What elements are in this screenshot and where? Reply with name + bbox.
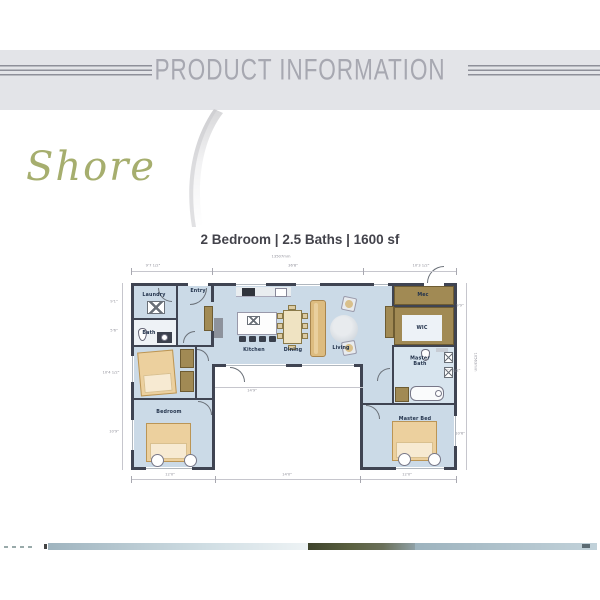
dim-label-overall-width: 13507mm [271,255,290,259]
master-pillow-right [428,453,441,466]
wall-masterbed-top [362,403,454,405]
window-bedroom-bottom [146,467,192,470]
photo-strip-sky-right [415,543,597,550]
wall-bath-bottom [133,345,214,347]
wall-rightwing-left [360,364,363,470]
dining-chair [277,333,283,339]
dim-label: 12'0" [402,473,412,477]
entry-closet [204,306,213,331]
page-curl-icon [176,109,226,229]
window-masterbed-bottom [396,467,444,470]
room-label-living: Living [332,345,349,351]
photo-strip-dash [20,546,24,548]
master-sink-1 [444,352,453,363]
dim-label: 14'9" [247,389,257,393]
dining-chair [277,313,283,319]
master-pillow-left [398,453,411,466]
armchair-top [341,296,358,313]
sliding-door-left [226,364,286,367]
dim-line-right [466,283,467,470]
dining-chair [288,305,296,310]
dining-chair [302,313,308,319]
fridge-icon [275,288,287,297]
window-kitchen [236,283,266,286]
photo-strip-sky-left [48,543,308,550]
room-label-bedroom: Bedroom [156,409,181,415]
dining-chair [302,323,308,329]
plan-summary: 2 Bedroom | 2.5 Baths | 1600 sf [120,232,480,247]
wall-mec-bottom [392,305,454,307]
dim-label: 14'0" [282,473,292,477]
bedroom-pillow-left [151,454,164,467]
photo-strip-speck [582,544,590,548]
stool-1 [239,336,246,342]
sliding-door-right [302,364,354,367]
hall-closet [385,306,394,338]
dim-label: 9'1" [110,300,117,304]
dim-tick [456,476,457,483]
washer-icon [147,301,165,314]
wall-top [131,283,457,286]
stove-icon [242,288,255,296]
window-dining [296,283,320,286]
brand-logo-shore: Shore [26,144,156,190]
office-bed-icon [137,350,177,397]
dim-tick [131,476,132,483]
dim-line-left [122,283,123,470]
island-sink-icon [247,316,260,325]
bedroom-pillow-right [184,454,197,467]
dining-chair [277,323,283,329]
masterbath-closet [395,387,409,402]
office-closet-upper [180,349,194,368]
door-opening-topright [424,283,444,286]
dim-tick [456,268,457,275]
photo-strip-trees [308,543,415,550]
dim-label: 10'4 1/2" [102,371,119,375]
wall-office-bedroom [133,398,214,400]
dim-label: 10'9" [109,430,119,434]
dim-label: 9'7 1/2" [146,264,161,268]
room-label-wic: WIC [416,325,427,331]
dim-label: 5'6" [110,329,117,333]
dim-label-overall-height: 10563mm [473,352,477,371]
window-hall [374,283,388,286]
dining-table-icon [283,310,302,344]
dim-label: 9'9" [456,304,463,308]
wall-masterbath-left [392,347,394,405]
photo-strip-dash [12,546,16,548]
photo-strip-dash [4,546,8,548]
bath-sink-icon [161,334,168,341]
page: PRODUCT INFORMATION Shore 2 Bedroom | 2.… [0,0,600,600]
room-label-mec: Mec [417,292,428,298]
dim-tick [215,476,216,483]
room-label-master-bath: Master Bath [408,355,432,367]
rug-icon [330,315,358,343]
dim-label: 10'3 1/2" [412,264,429,268]
sofa-icon [310,300,326,357]
room-label-laundry: Laundry [142,292,165,298]
page-title: PRODUCT INFORMATION [48,54,552,87]
wall-wic-bottom [392,345,454,347]
dim-label: 10'6" [455,432,465,436]
wall-laundry-bath [133,318,176,320]
door-opening-entry [188,283,208,286]
window-bedroom-left [131,420,134,450]
pantry-unit [214,318,223,338]
dim-line-inner [215,387,363,388]
photo-strip-dash [28,546,32,548]
office-closet-lower [180,371,194,392]
room-label-dining: Dining [284,347,303,353]
door-arc-main-entry [427,266,444,283]
wall-mec-left [392,286,394,307]
room-label-master-bed: Master Bed [399,416,431,422]
dim-tick [212,268,213,275]
dim-label: 11'1 1/2" [443,369,460,373]
tub-drain [435,390,442,397]
window-office [131,356,134,382]
wall-entry-upper [211,286,214,302]
stool-2 [249,336,256,342]
dim-tick [363,268,364,275]
dining-chair [302,333,308,339]
dim-tick [131,268,132,275]
dim-label: 12'0" [165,473,175,477]
photo-strip-mark [44,544,47,549]
dim-tick [360,476,361,483]
room-label-kitchen: Kitchen [243,347,265,353]
dim-line-bottom [131,479,457,480]
wall-leftwing-right [212,364,215,470]
dim-label: 36'8" [288,264,298,268]
dim-line-top [131,271,457,272]
room-label-bath: Bath [142,330,155,336]
wall-laundry-right [176,286,178,347]
stool-3 [259,336,266,342]
door-arc-patio [230,367,245,382]
stool-4 [269,336,276,342]
room-label-entry: Entry [190,288,205,294]
